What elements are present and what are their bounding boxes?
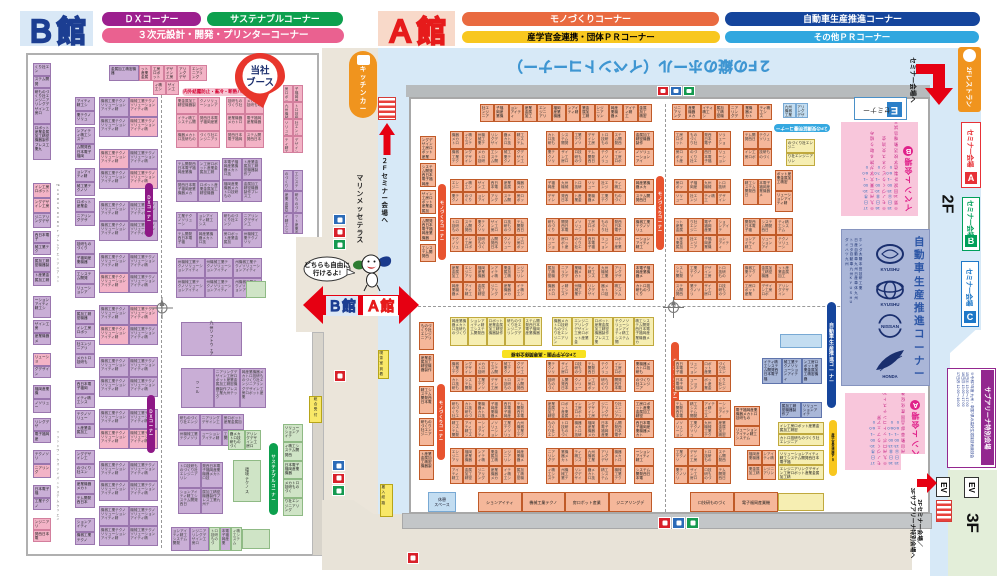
svg-text:KYUSHU: KYUSHU — [880, 302, 899, 307]
svg-text:HONDA: HONDA — [882, 374, 897, 379]
svg-text:KYUSHU: KYUSHU — [880, 267, 899, 272]
svg-text:ブース: ブース — [246, 77, 274, 89]
svg-text:行けるよ!: 行けるよ! — [312, 268, 341, 277]
svg-text:当社: 当社 — [250, 65, 270, 77]
svg-text:NISSAN: NISSAN — [881, 324, 900, 330]
svg-text:どちらも自由に: どちらも自由に — [304, 260, 350, 269]
